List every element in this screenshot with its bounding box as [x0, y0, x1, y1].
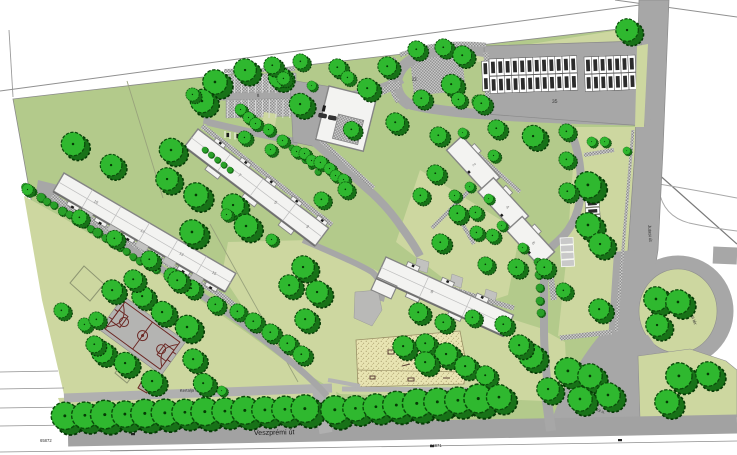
svg-text:35: 35 — [552, 99, 558, 105]
svg-text:65872: 65872 — [40, 438, 52, 443]
svg-text:66871: 66871 — [430, 443, 442, 448]
svg-text:Veszprémi út: Veszprémi út — [254, 429, 295, 437]
